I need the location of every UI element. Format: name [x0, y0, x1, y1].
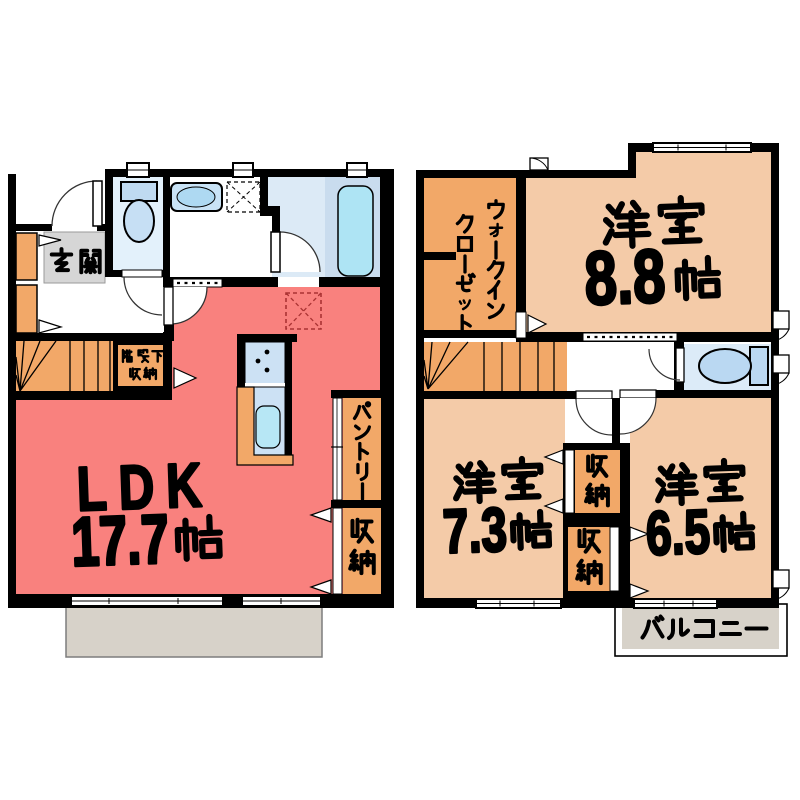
svg-text:8.8: 8.8	[583, 234, 667, 321]
svg-text:7.3: 7.3	[442, 495, 508, 567]
svg-text:6.5: 6.5	[645, 497, 711, 569]
svg-text:17.7: 17.7	[70, 499, 170, 580]
